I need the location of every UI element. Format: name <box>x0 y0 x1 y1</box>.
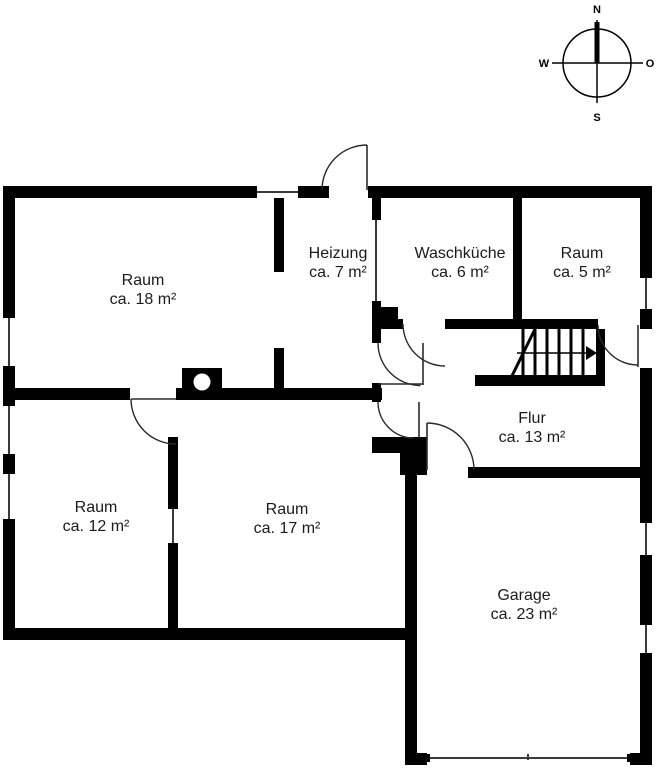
wall-segment <box>372 437 427 453</box>
room-label-raum-18: Raum ca. 18 m² <box>110 272 177 308</box>
compass-label-south: S <box>593 112 600 124</box>
compass-label-west: W <box>539 58 550 70</box>
wall-segment <box>640 655 652 765</box>
wall-segment <box>3 186 15 316</box>
window-cap <box>640 274 652 278</box>
wall-segment <box>468 467 652 478</box>
room-name: Raum <box>122 272 165 289</box>
room-area: ca. 23 m² <box>491 606 558 623</box>
room-name: Heizung <box>309 245 368 262</box>
wall-segment <box>640 557 652 623</box>
door-arc <box>378 402 414 438</box>
opening-cap <box>372 301 381 305</box>
chimney <box>182 368 222 398</box>
opening-cap <box>372 216 381 220</box>
wall-segment <box>372 193 381 218</box>
opening-cap <box>168 505 178 509</box>
window-cap <box>3 470 15 474</box>
garage-door-cap <box>627 754 631 762</box>
window-cap <box>640 621 652 625</box>
wall-segment <box>372 383 381 402</box>
wall-segment <box>3 388 130 400</box>
wall-segment <box>640 186 652 276</box>
room-area: ca. 6 m² <box>431 264 489 281</box>
door-arc <box>322 145 367 190</box>
wall-segment <box>405 450 417 765</box>
floor-plan: N O S W Raum ca. 18 m² Heizung ca. 7 m² … <box>0 0 658 768</box>
wall-segment <box>405 753 427 765</box>
window-cap <box>3 454 15 458</box>
room-area: ca. 13 m² <box>499 429 566 446</box>
room-label-raum-17: Raum ca. 17 m² <box>254 501 321 537</box>
window-cap <box>3 519 15 523</box>
room-name: Raum <box>266 501 309 518</box>
wall-segment <box>3 628 417 640</box>
compass-label-east: O <box>646 58 655 70</box>
window-cap <box>298 186 303 198</box>
window-cap <box>3 402 15 406</box>
window-cap <box>640 653 652 657</box>
door-arc <box>403 324 445 366</box>
wall-segment <box>640 311 652 329</box>
room-name: Garage <box>497 587 550 604</box>
wall-segment <box>640 368 652 521</box>
compass-rose: N O S W <box>539 4 655 124</box>
wall-segment <box>168 437 178 507</box>
room-area: ca. 17 m² <box>254 520 321 537</box>
room-label-waschkueche: Waschküche ca. 6 m² <box>415 245 506 281</box>
window-cap <box>640 309 652 313</box>
door-arc <box>378 343 421 386</box>
window-cap <box>640 519 652 523</box>
room-area: ca. 7 m² <box>309 264 367 281</box>
garage-door-cap <box>426 754 430 762</box>
window-cap <box>3 314 15 318</box>
room-label-raum-12: Raum ca. 12 m² <box>63 499 130 535</box>
wall-segment <box>445 319 598 329</box>
window-cap <box>252 186 257 198</box>
wall-segment <box>274 198 284 272</box>
wall-segment <box>372 325 381 343</box>
window-cap <box>640 555 652 559</box>
room-name: Waschküche <box>415 245 506 262</box>
wall-segment <box>3 186 252 198</box>
window-cap <box>3 366 15 370</box>
chimney-flue <box>194 374 211 391</box>
wall-segment <box>475 375 605 386</box>
room-area: ca. 5 m² <box>553 264 611 281</box>
door-arc <box>427 423 474 470</box>
room-label-garage: Garage ca. 23 m² <box>491 587 558 623</box>
room-area: ca. 12 m² <box>63 518 130 535</box>
room-label-heizung: Heizung ca. 7 m² <box>309 245 368 281</box>
wall-segment <box>513 193 522 329</box>
room-name: Raum <box>75 499 118 516</box>
room-area: ca. 18 m² <box>110 291 177 308</box>
wall-segment <box>3 456 15 472</box>
wall-segment <box>3 521 15 640</box>
door-jamb <box>324 186 329 198</box>
wall-segment <box>368 186 652 198</box>
floor-plan-drawing: N O S W Raum ca. 18 m² Heizung ca. 7 m² … <box>0 0 658 768</box>
room-label-raum-5: Raum ca. 5 m² <box>553 245 611 281</box>
room-name: Raum <box>561 245 604 262</box>
stair-direction-arrowhead <box>586 346 597 360</box>
opening-cap <box>168 543 178 547</box>
compass-north-needle <box>595 22 600 63</box>
wall-segment <box>168 545 178 640</box>
compass-label-north: N <box>593 4 601 16</box>
room-labels: Raum ca. 18 m² Heizung ca. 7 m² Waschküc… <box>63 245 612 623</box>
room-label-flur: Flur ca. 13 m² <box>499 410 566 446</box>
room-name: Flur <box>518 410 546 427</box>
